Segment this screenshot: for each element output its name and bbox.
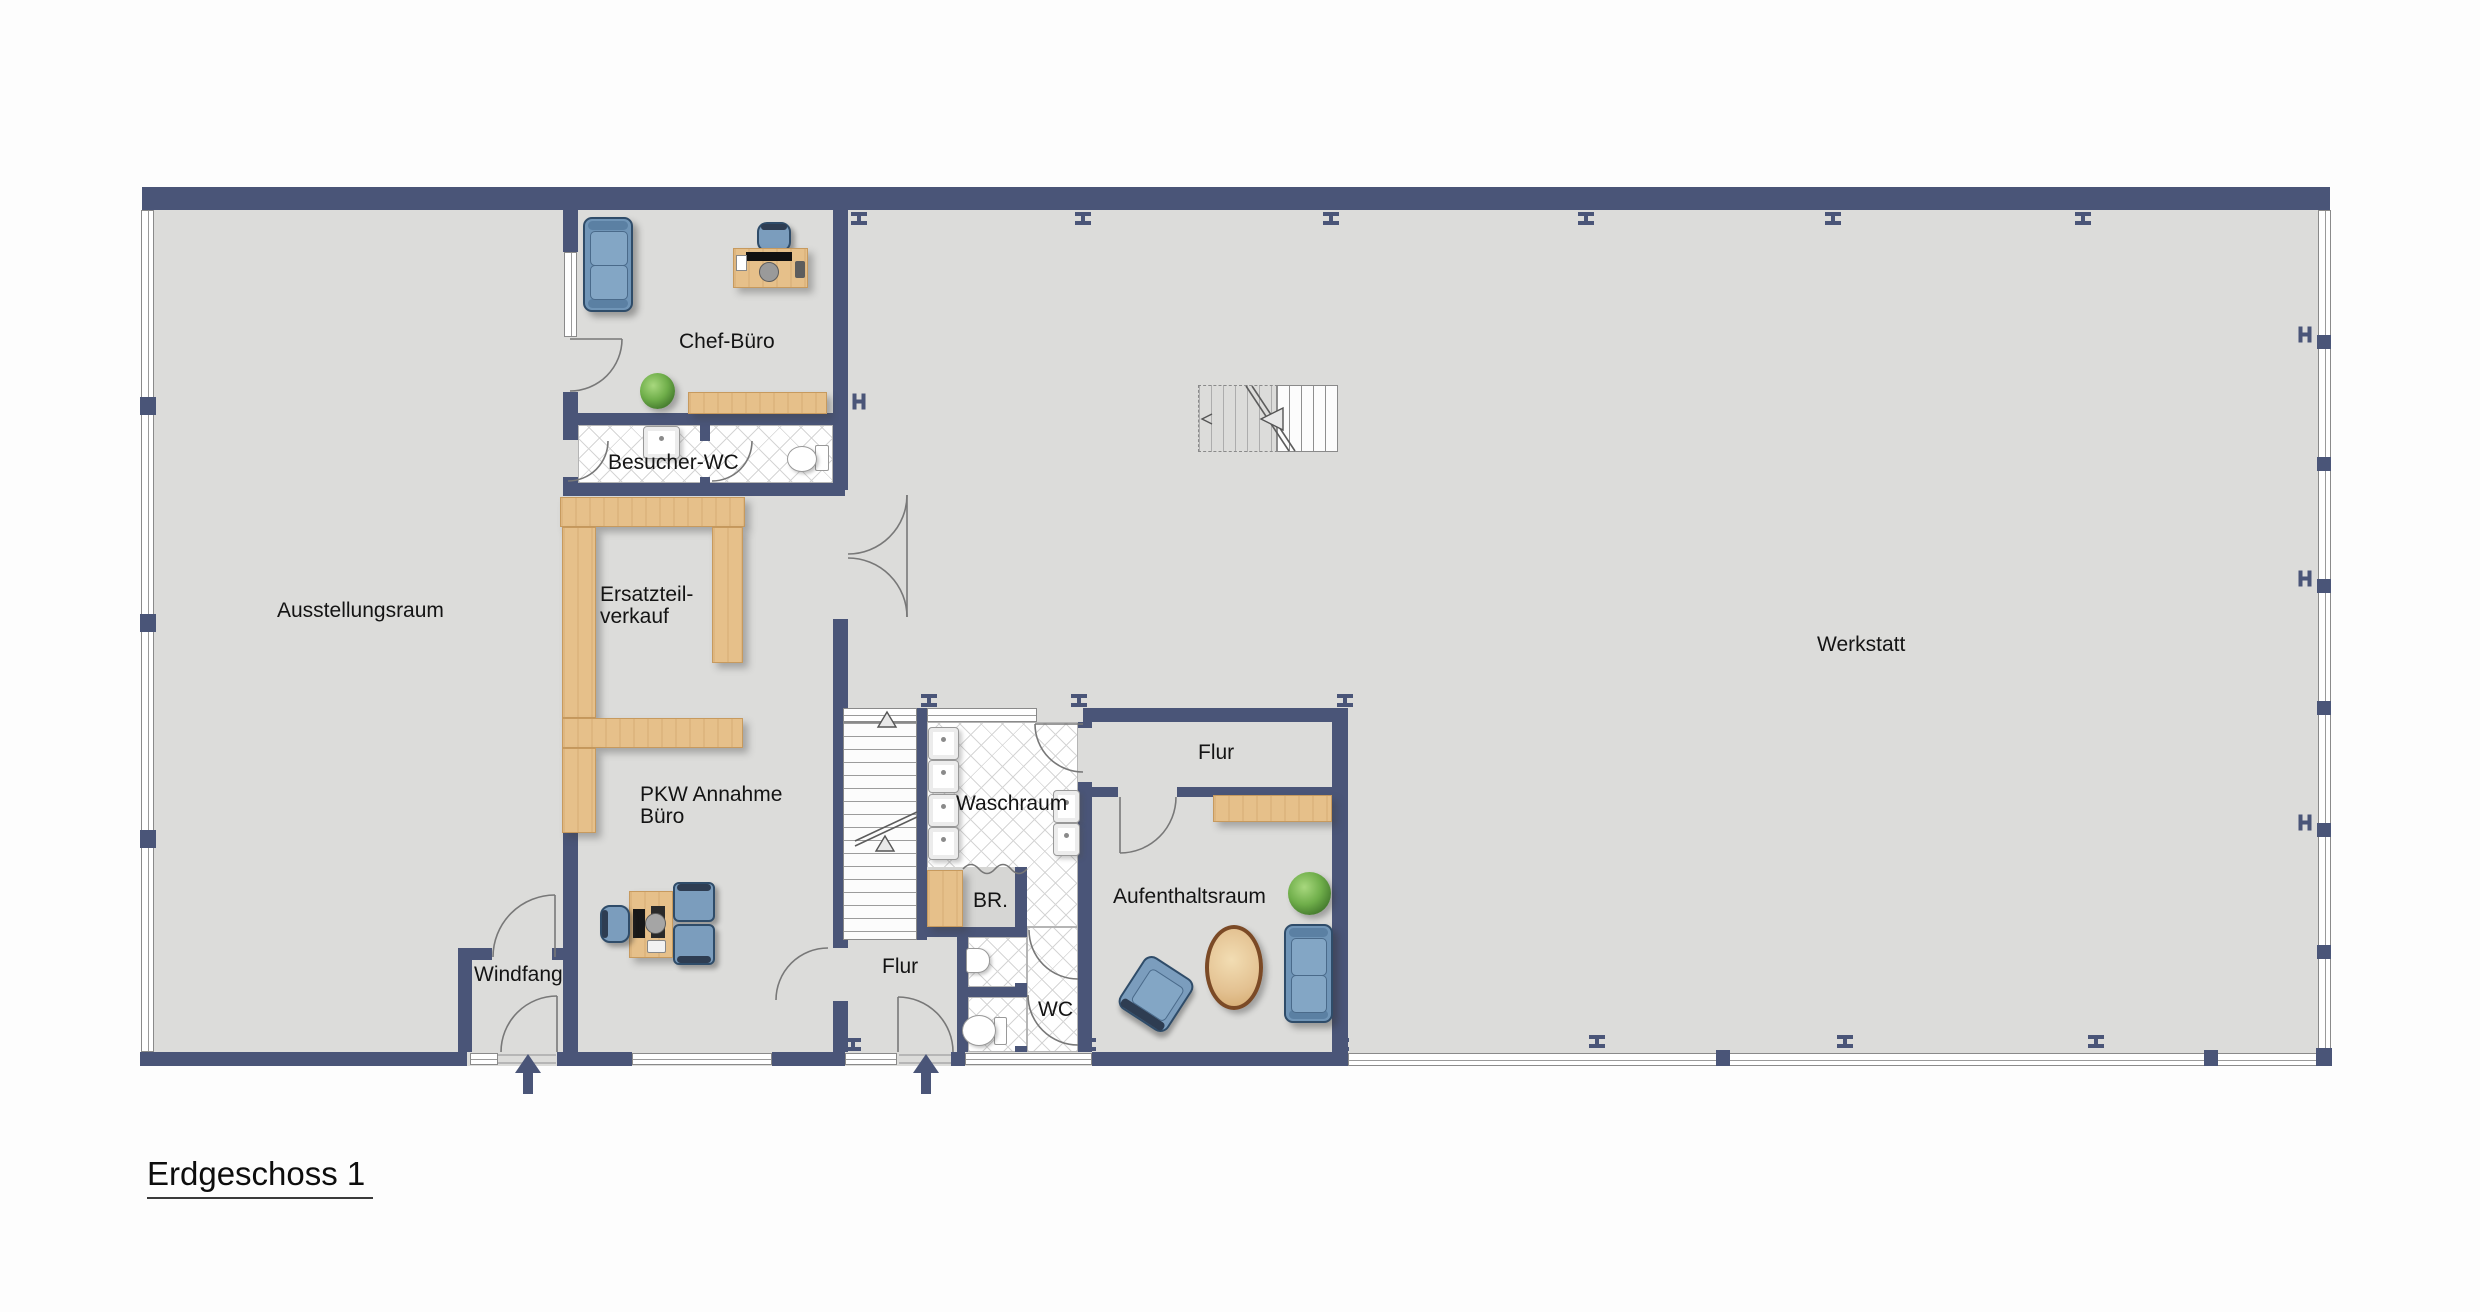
steel-column-icon	[1333, 1038, 1349, 1051]
plant-lounge	[1288, 872, 1331, 915]
washbasin-3	[928, 794, 959, 827]
parts-counter-left-lower	[562, 748, 596, 833]
wall-wc-west	[563, 423, 578, 440]
sideboard-chef-office	[688, 392, 827, 414]
urinal	[966, 948, 990, 973]
wall-post	[2317, 579, 2331, 593]
wall-post	[1716, 1050, 1730, 1066]
office-chair-pkw	[600, 905, 630, 943]
wall-office-west-lower	[563, 833, 578, 1052]
wall-stub	[1015, 983, 1027, 997]
steel-column-icon	[921, 694, 937, 707]
steel-column-icon	[1337, 694, 1353, 707]
sofa-chef-office	[583, 217, 633, 312]
coffee-table-lounge	[1205, 925, 1263, 1010]
wall-wc-south	[563, 483, 845, 496]
wall-windfang-west	[458, 948, 472, 1052]
washbasin-2	[928, 760, 959, 793]
wall-workshop-west	[833, 423, 848, 490]
wall-post	[2204, 1050, 2218, 1066]
parts-counter-top	[560, 497, 745, 527]
wall-top	[142, 187, 2330, 210]
visitor-chair-2	[673, 924, 715, 965]
room-label-pkw-annahme: PKW Annahme Büro	[640, 784, 782, 828]
washbasin-6	[1053, 823, 1080, 856]
steel-column-icon	[1080, 1038, 1096, 1051]
toilet-bowl-wc	[962, 1015, 996, 1046]
room-label-wc: WC	[1038, 999, 1073, 1021]
wall-post	[2317, 335, 2331, 349]
monitor-chef-desk	[746, 252, 792, 261]
parts-counter-left	[562, 527, 596, 718]
steel-column-icon	[2299, 571, 2312, 587]
steel-column-icon	[1075, 212, 1091, 225]
room-label-windfang: Windfang	[474, 964, 563, 986]
steel-column-icon	[2299, 327, 2312, 343]
steel-column-icon	[853, 394, 866, 410]
wall-windfang-north	[458, 948, 492, 960]
wall-wc-divider	[700, 425, 710, 441]
wall-stairs-east	[917, 722, 927, 940]
wall-chef-south	[563, 413, 845, 425]
wall-block-east	[1078, 722, 1092, 728]
wall-br-east	[1015, 867, 1027, 927]
room-label-werkstatt: Werkstatt	[1817, 634, 1905, 656]
washbasin-4	[928, 827, 959, 860]
sideboard-lounge	[1213, 795, 1332, 822]
steel-column-icon	[845, 1038, 861, 1051]
page-title: Erdgeschoss 1	[147, 1155, 373, 1199]
steel-column-icon	[1323, 212, 1339, 225]
phone-chef-desk	[795, 261, 805, 278]
printer-pkw-desk	[633, 909, 645, 938]
steel-column-icon	[1071, 694, 1087, 707]
wall-post	[140, 830, 156, 848]
wall-post	[2317, 945, 2331, 959]
wall-office-west	[563, 210, 578, 252]
window-sidelight-entrance2	[845, 1053, 897, 1065]
wall-windfang-north	[552, 948, 563, 960]
bench-shower-room	[927, 870, 963, 927]
wall-wc-divider	[700, 477, 710, 483]
steel-column-icon	[1589, 1035, 1605, 1048]
window-chef-office	[564, 252, 577, 337]
steel-column-icon	[1825, 212, 1841, 225]
washbasin-1	[928, 727, 959, 760]
wall-bottom-stub	[951, 1052, 965, 1066]
parts-counter-right	[712, 527, 743, 663]
toilet-bowl-besucher-wc	[787, 446, 817, 472]
room-label-flur-rechts: Flur	[1198, 742, 1234, 764]
room-label-chef-buero: Chef-Büro	[679, 331, 775, 353]
room-label-flur-mitte: Flur	[882, 956, 918, 978]
window-washroom-north	[927, 708, 1037, 722]
room-label-br: BR.	[973, 890, 1008, 912]
chair-seat-pkw-desk	[645, 913, 666, 934]
wall-block-north	[1083, 708, 1348, 722]
wall-br-south	[917, 927, 1027, 937]
wall-block-east	[1078, 782, 1092, 1052]
plant-chef-office	[640, 373, 675, 409]
parts-counter-mid	[562, 718, 743, 748]
wall-workshop-west	[833, 210, 848, 423]
wall-post	[2317, 701, 2331, 715]
chair-seat-under-desk	[759, 262, 779, 282]
room-label-besucher-wc: Besucher-WC	[608, 452, 739, 474]
window-sidelight-entrance1	[470, 1053, 498, 1065]
steel-column-icon	[2299, 815, 2312, 831]
toilet-tank-besucher-wc	[815, 445, 829, 471]
window-bottom-workshop	[1348, 1053, 2330, 1066]
paper-chef-desk	[736, 255, 747, 271]
room-label-waschraum: Waschraum	[956, 793, 1067, 815]
floor-plan: Ausstellungsraum Chef-Büro Besucher-WC E…	[0, 0, 2480, 1312]
wall-post-corner	[2316, 1048, 2332, 1066]
steel-column-icon	[2088, 1035, 2104, 1048]
wall-post	[917, 708, 927, 722]
steel-column-icon	[1578, 212, 1594, 225]
steel-column-icon	[851, 212, 867, 225]
wall-bottom	[557, 1052, 632, 1066]
visitor-chair-1	[673, 882, 715, 922]
room-label-aufenthaltsraum: Aufenthaltsraum	[1113, 886, 1266, 908]
wall-lounge-east	[1332, 712, 1348, 1052]
wall-lounge-north	[1092, 787, 1118, 797]
room-label-ersatzteilverkauf: Ersatzteil- verkauf	[600, 584, 693, 628]
wall-post	[140, 397, 156, 415]
staircase-workshop-lower	[1276, 385, 1338, 452]
window-stair-north	[843, 708, 917, 722]
sanitary-corridor-floor	[1027, 927, 1078, 1052]
wall-bottom-lounge	[1092, 1052, 1348, 1066]
room-label-ausstellungsraum: Ausstellungsraum	[277, 600, 444, 622]
staircase-main	[843, 722, 917, 940]
wall-bottom	[772, 1052, 845, 1066]
steel-column-icon	[2075, 212, 2091, 225]
phone-pkw-desk	[647, 940, 666, 953]
staircase-workshop-upper	[1198, 385, 1283, 452]
window-bottom-office	[632, 1053, 772, 1065]
sofa-lounge	[1284, 924, 1333, 1023]
wall-post	[140, 614, 156, 632]
wall-post	[2317, 823, 2331, 837]
steel-column-icon	[1837, 1035, 1853, 1048]
wall-bottom-showroom	[140, 1052, 467, 1066]
wall-stub	[1015, 1046, 1027, 1052]
wall-post	[2317, 457, 2331, 471]
window-bottom-wc	[965, 1053, 1092, 1065]
